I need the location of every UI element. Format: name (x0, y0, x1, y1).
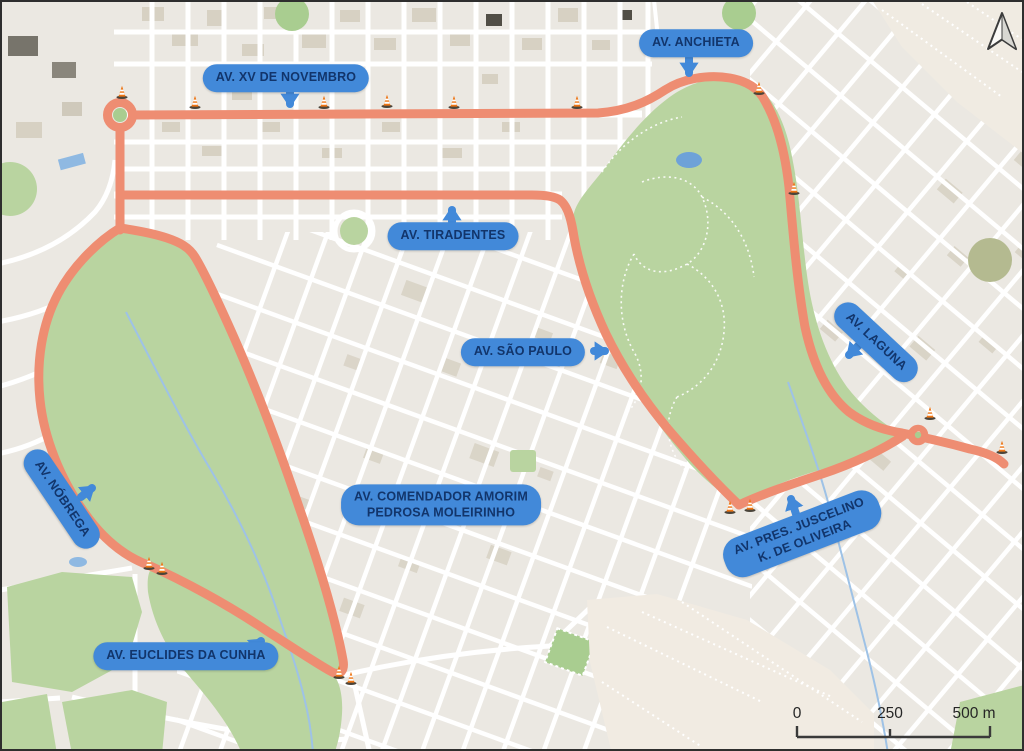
road-label-text: AV. XV DE NOVEMBRO (216, 70, 356, 84)
road-label-text: AV. ANCHIETA (652, 35, 740, 49)
scale-label-middle: 250 (877, 705, 903, 722)
road-label-comendador: AV. COMENDADOR AMORIM PEDROSA MOLEIRINHO (341, 484, 541, 525)
road-label-anchieta: AV. ANCHIETA (639, 29, 753, 57)
road-label-text: AV. TIRADENTES (401, 228, 506, 242)
road-label-text: AV. COMENDADOR AMORIM (354, 489, 528, 503)
scale-label-end: 500 m (952, 705, 995, 722)
road-label-text: PEDROSA MOLEIRINHO (367, 505, 515, 519)
roundabout-center (113, 108, 127, 122)
road-label-euclides: AV. EUCLIDES DA CUNHA (93, 642, 278, 670)
pond (676, 152, 702, 168)
route-map: 0 250 500 m AV. ANCHIETA AV. XV DE NOVEM… (0, 0, 1024, 751)
road-label-xv-de-novembro: AV. XV DE NOVEMBRO (203, 64, 369, 92)
road-label-text: AV. SÃO PAULO (474, 344, 572, 358)
scale-label-start: 0 (793, 705, 802, 722)
road-label-text: AV. EUCLIDES DA CUNHA (106, 648, 265, 662)
map-canvas: 0 250 500 m (2, 2, 1024, 751)
road-label-sao-paulo: AV. SÃO PAULO (461, 338, 585, 366)
road-label-tiradentes: AV. TIRADENTES (388, 222, 519, 250)
